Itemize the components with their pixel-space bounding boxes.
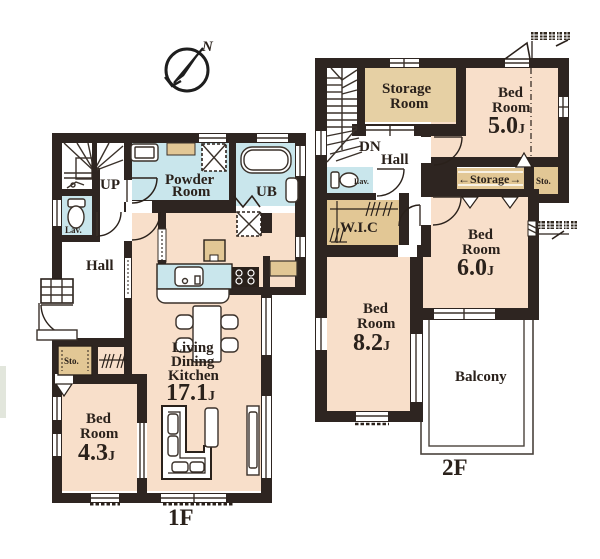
svg-text:Lav.: Lav. <box>354 177 369 186</box>
svg-text:Bed: Bed <box>468 227 494 243</box>
svg-text:N: N <box>201 39 214 55</box>
svg-text:←Storage→: ←Storage→ <box>458 172 521 186</box>
svg-text:Hall: Hall <box>381 152 409 168</box>
svg-text:Bed: Bed <box>363 301 389 317</box>
svg-text:Room: Room <box>172 184 211 200</box>
svg-text:Room: Room <box>390 96 429 112</box>
svg-text:Sto.: Sto. <box>536 176 551 186</box>
svg-text:UP: UP <box>100 177 120 193</box>
svg-text:Hall: Hall <box>86 258 114 274</box>
svg-text:17.1J: 17.1J <box>166 380 215 406</box>
svg-text:Storage: Storage <box>382 81 431 97</box>
svg-text:1F: 1F <box>168 505 194 530</box>
svg-text:2F: 2F <box>442 455 468 480</box>
svg-text:Balcony: Balcony <box>455 369 507 385</box>
svg-text:DN: DN <box>359 139 381 155</box>
svg-text:W.I.C: W.I.C <box>340 220 378 236</box>
svg-text:Lav.: Lav. <box>65 225 82 235</box>
svg-text:Bed: Bed <box>498 85 524 101</box>
svg-text:UB: UB <box>256 184 277 200</box>
svg-text:Sto.: Sto. <box>64 356 79 366</box>
svg-text:Bed: Bed <box>86 411 112 427</box>
